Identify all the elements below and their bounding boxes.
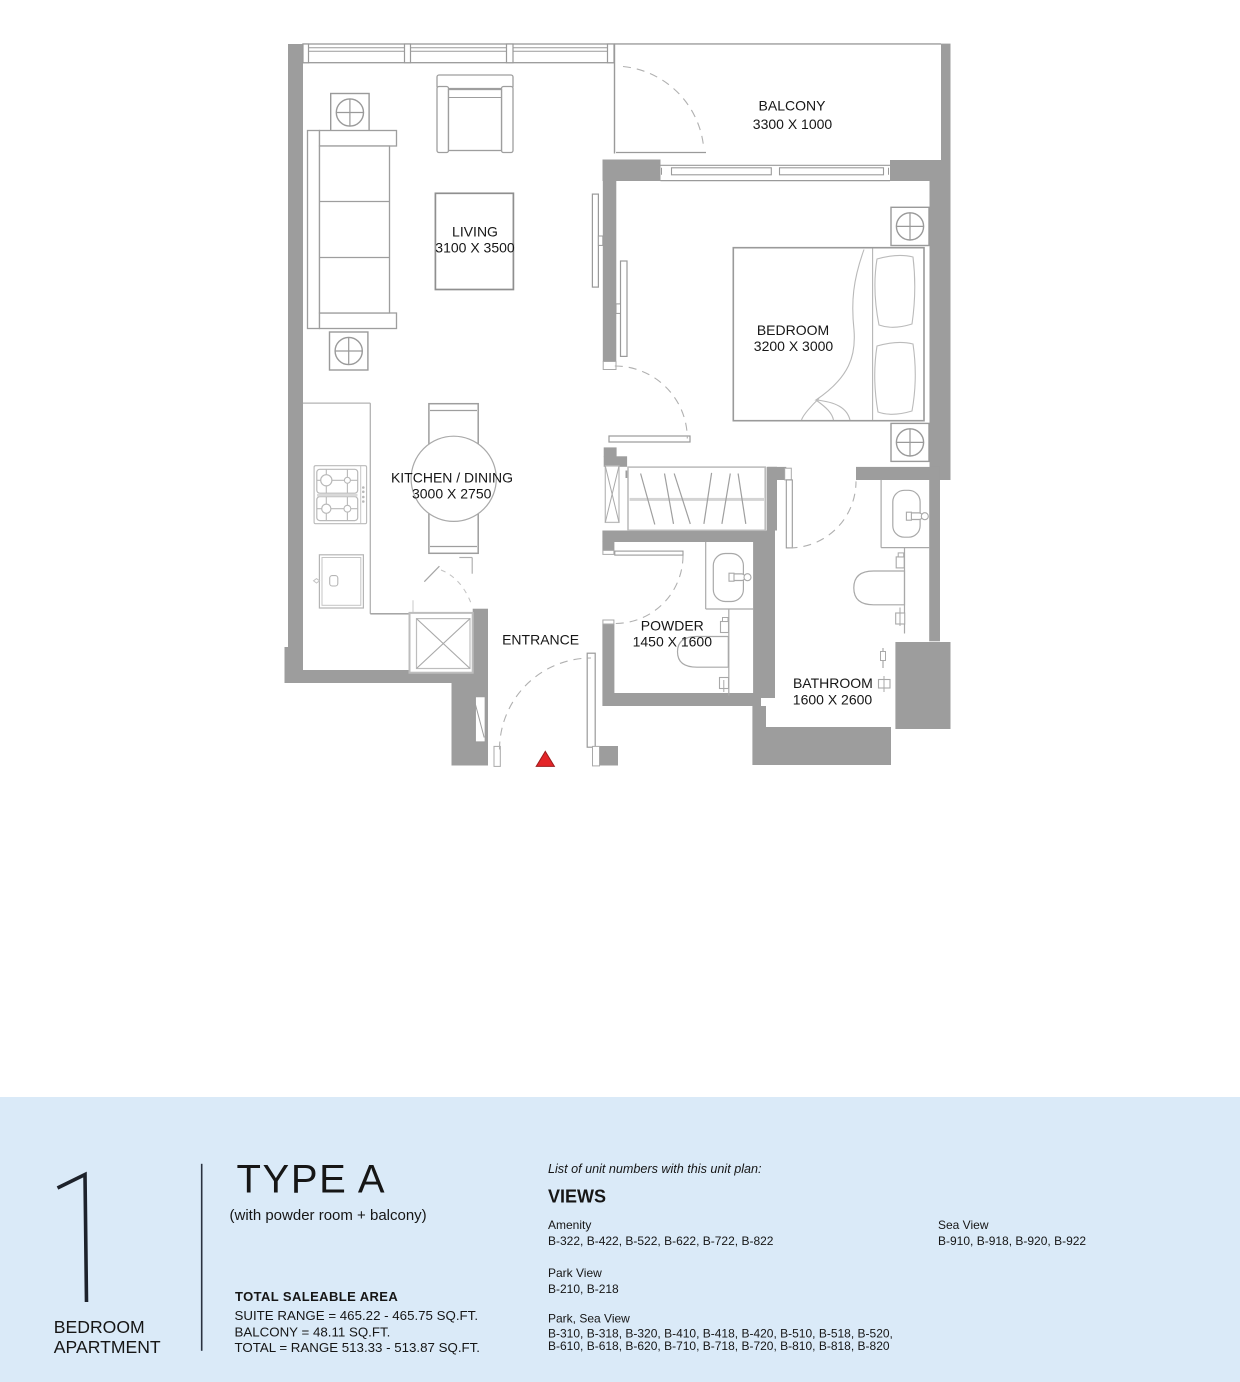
svg-text:3100 X 3500: 3100 X 3500 [435,239,515,255]
svg-text:TYPE A: TYPE A [237,1158,387,1202]
svg-text:List of unit numbers with this: List of unit numbers with this unit plan… [548,1162,762,1176]
svg-text:B-610, B-618, B-620, B-710, B-: B-610, B-618, B-620, B-710, B-718, B-720… [548,1339,890,1353]
svg-text:Park, Sea View: Park, Sea View [548,1311,630,1325]
svg-text:BALCONY: BALCONY [759,97,827,113]
svg-text:POWDER: POWDER [641,617,704,633]
svg-text:Park View: Park View [548,1266,602,1280]
svg-text:TOTAL SALEABLE AREA: TOTAL SALEABLE AREA [235,1289,398,1304]
svg-text:1600 X 2600: 1600 X 2600 [793,692,873,708]
svg-text:ENTRANCE: ENTRANCE [502,632,579,648]
svg-text:BALCONY = 48.11 SQ.FT.: BALCONY = 48.11 SQ.FT. [235,1325,391,1340]
svg-text:B-322, B-422, B-522, B-622, B-: B-322, B-422, B-522, B-622, B-722, B-822 [548,1234,774,1248]
svg-text:KITCHEN / DINING: KITCHEN / DINING [391,469,513,485]
svg-text:BEDROOM: BEDROOM [54,1317,145,1337]
svg-text:TOTAL = RANGE 513.33 - 513.87: TOTAL = RANGE 513.33 - 513.87 SQ.FT. [235,1340,481,1355]
svg-text:B-210, B-218: B-210, B-218 [548,1282,619,1296]
svg-text:3200 X 3000: 3200 X 3000 [754,338,834,354]
svg-text:SUITE RANGE = 465.22 - 465.75: SUITE RANGE = 465.22 - 465.75 SQ.FT. [235,1308,479,1323]
svg-text:LIVING: LIVING [452,224,498,240]
svg-text:Amenity: Amenity [548,1218,591,1232]
svg-text:B-910, B-918, B-920, B-922: B-910, B-918, B-920, B-922 [938,1234,1086,1248]
svg-text:APARTMENT: APARTMENT [54,1337,161,1357]
svg-text:(with powder room + balcony): (with powder room + balcony) [230,1207,427,1224]
svg-text:BATHROOM: BATHROOM [793,675,873,691]
svg-text:3000 X 2750: 3000 X 2750 [412,486,492,502]
svg-text:Sea View: Sea View [938,1218,989,1232]
svg-text:BEDROOM: BEDROOM [757,322,829,338]
svg-text:3300 X 1000: 3300 X 1000 [753,116,833,132]
svg-text:VIEWS: VIEWS [548,1187,606,1207]
svg-text:1450 X 1600: 1450 X 1600 [633,633,713,649]
